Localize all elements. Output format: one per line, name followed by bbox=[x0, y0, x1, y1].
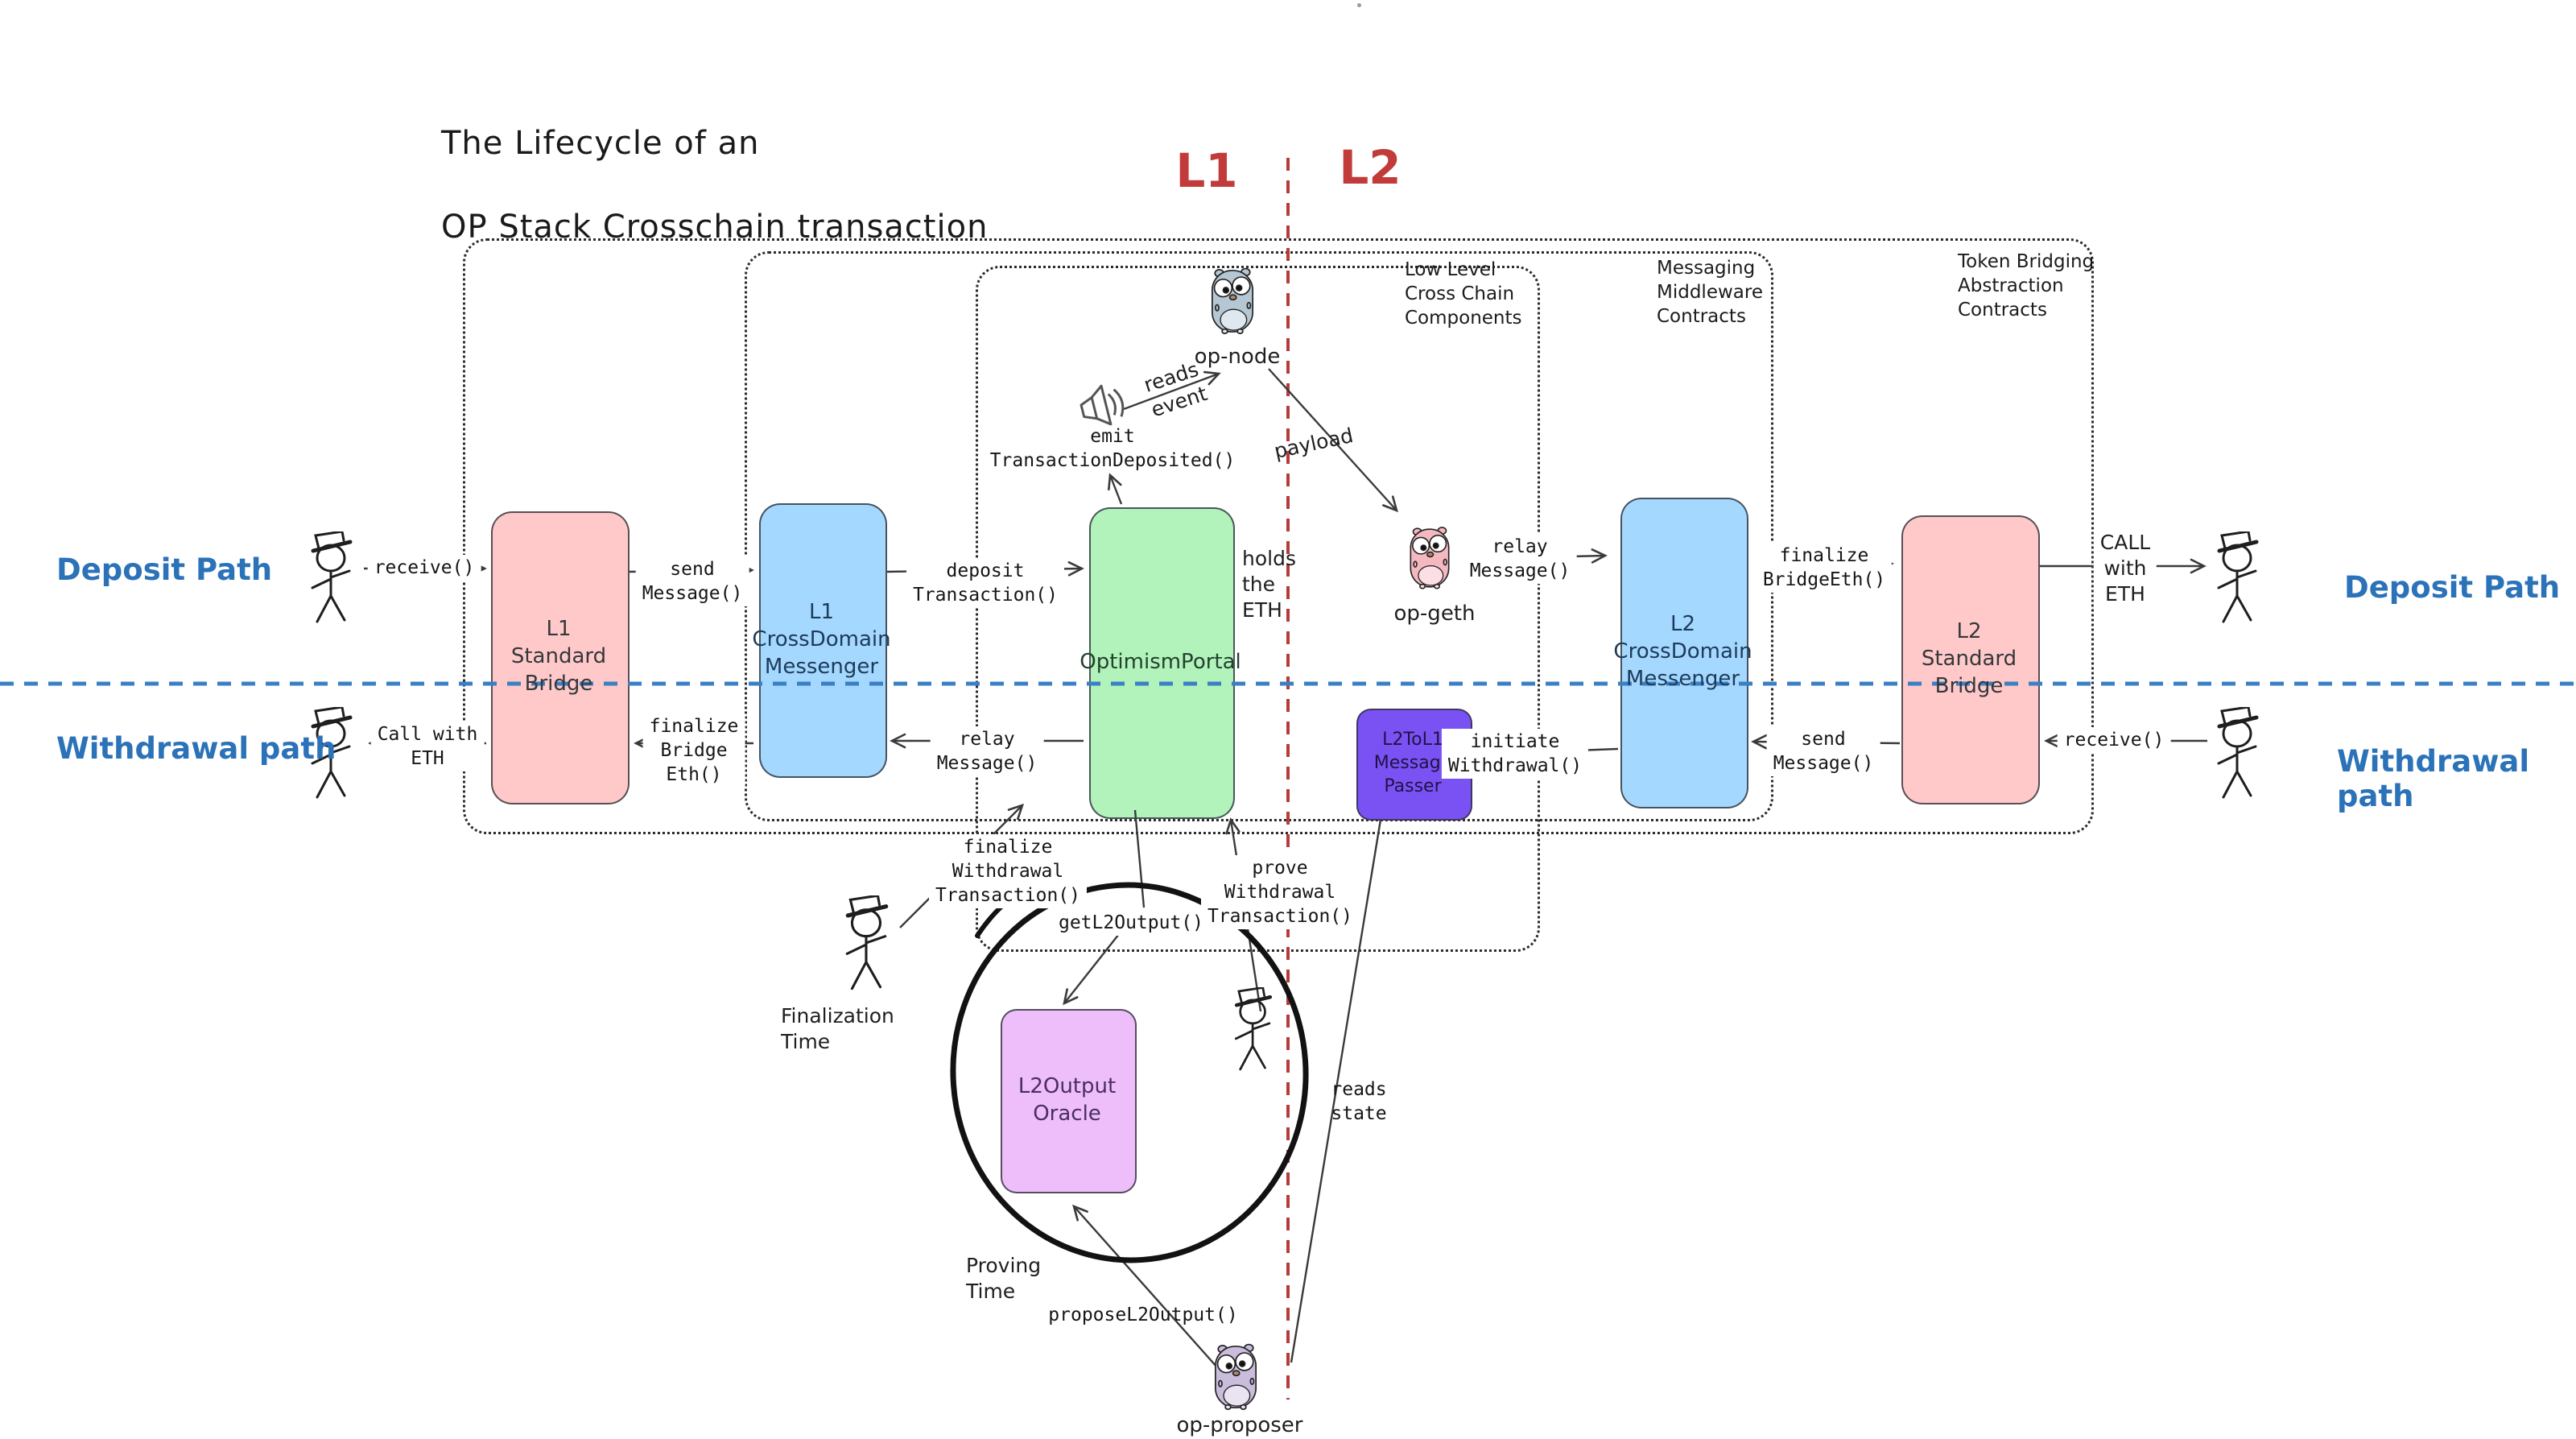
withdrawal-path-left-label: Withdrawal path bbox=[56, 731, 336, 766]
deposit-path-right-label: Deposit Path bbox=[2344, 570, 2560, 605]
get-l2-output-label: getL2Output() bbox=[1052, 910, 1210, 936]
relay-message-withdrawal-label: relay Message() bbox=[931, 726, 1044, 776]
l1-crossdomain-messenger-box bbox=[759, 503, 887, 778]
optimism-portal-box bbox=[1089, 507, 1235, 819]
op-proposer-label: op-proposer bbox=[1177, 1413, 1303, 1437]
user-deposit-left-icon bbox=[312, 531, 350, 622]
receive-deposit-label: receive() bbox=[368, 555, 481, 581]
receive-withdrawal-label: receive() bbox=[2058, 727, 2171, 753]
proving-time-label: Proving Time bbox=[966, 1253, 1041, 1305]
prove-withdrawal-transaction-label: prove Withdrawal Transaction() bbox=[1201, 855, 1359, 929]
stray-dot bbox=[1357, 3, 1361, 7]
l2-layer-label: L2 bbox=[1339, 140, 1401, 195]
relay-message-deposit-label: relay Message() bbox=[1463, 534, 1577, 584]
group-messaging-label: Messaging Middleware Contracts bbox=[1657, 256, 1763, 329]
l1-standard-bridge-box bbox=[491, 511, 630, 804]
user-finalization-icon bbox=[847, 895, 885, 989]
emit-transaction-deposited-label: emit TransactionDeposited() bbox=[990, 424, 1236, 473]
deposit-transaction-label: deposit Transaction() bbox=[906, 558, 1064, 608]
user-deposit-right-icon bbox=[2219, 531, 2256, 622]
call-with-eth-l1-label: Call with ETH bbox=[371, 722, 485, 771]
finalize-bridgeeth-label: finalize BridgeEth() bbox=[1757, 543, 1892, 593]
initiate-withdrawal-label: initiate Withdrawal() bbox=[1442, 729, 1588, 779]
withdrawal-path-right-label: Withdrawal path bbox=[2337, 744, 2576, 813]
op-proposer-gopher-icon bbox=[1216, 1345, 1256, 1410]
holds-the-eth-label: holds the ETH bbox=[1242, 546, 1296, 623]
l1-layer-label: L1 bbox=[1175, 143, 1237, 198]
finalize-withdrawal-transaction-label: finalize Withdrawal Transaction() bbox=[929, 834, 1087, 908]
title-line-1: The Lifecycle of an bbox=[441, 125, 759, 162]
deposit-path-left-label: Deposit Path bbox=[56, 552, 272, 587]
propose-l2-output-label: proposeL2Output() bbox=[1048, 1303, 1237, 1327]
l2-crossdomain-messenger-box bbox=[1620, 498, 1748, 808]
l2-standard-bridge-box bbox=[1901, 515, 2040, 804]
diagram-canvas: L1 Standard Bridge L1 CrossDomain Messen… bbox=[0, 0, 2576, 1439]
finalize-bridge-eth-l1-label: finalize Bridge Eth() bbox=[643, 713, 745, 788]
l2-output-oracle-box bbox=[1001, 1009, 1137, 1193]
edge-propose-l2-output bbox=[1074, 1206, 1217, 1367]
call-with-eth-l2-label: CALL with ETH bbox=[2094, 529, 2157, 608]
user-prover-icon bbox=[1236, 987, 1270, 1069]
title-line-2: OP Stack Crosschain transaction bbox=[441, 209, 988, 246]
reads-state-label: reads state bbox=[1331, 1077, 1386, 1126]
group-token-bridging-label: Token Bridging Abstraction Contracts bbox=[1958, 250, 2094, 322]
diagram-title: The Lifecycle of an OP Stack Crosschain … bbox=[441, 81, 988, 248]
finalization-time-label: Finalization Time bbox=[781, 1003, 894, 1055]
op-node-label: op-node bbox=[1195, 345, 1281, 369]
group-low-level-label: Low Level Cross Chain Components bbox=[1405, 258, 1522, 330]
send-message-withdrawal-label: send Message() bbox=[1767, 726, 1880, 776]
op-geth-label: op-geth bbox=[1394, 602, 1476, 626]
user-withdrawal-right-icon bbox=[2219, 707, 2256, 797]
send-message-deposit-label: send Message() bbox=[636, 556, 749, 606]
